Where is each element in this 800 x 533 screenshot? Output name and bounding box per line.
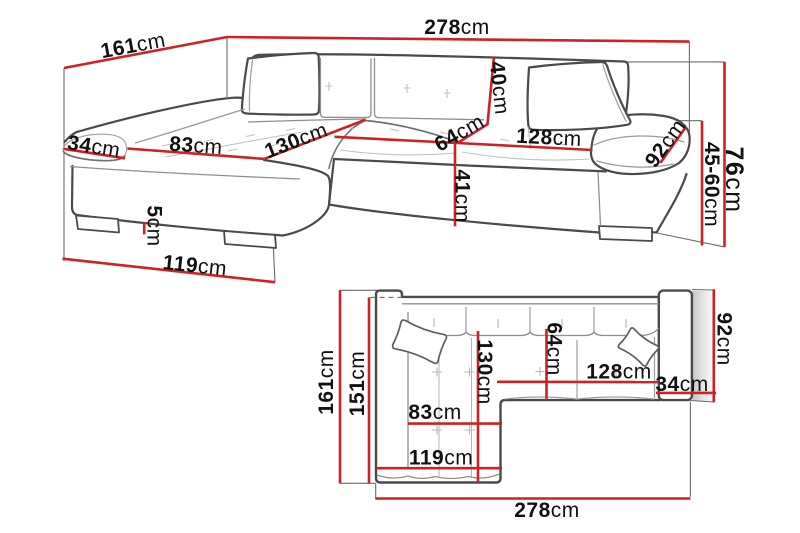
svg-text:128cm: 128cm — [516, 125, 583, 151]
svg-text:41cm: 41cm — [451, 169, 474, 222]
svg-text:34cm: 34cm — [655, 373, 708, 396]
svg-text:130cm: 130cm — [473, 339, 496, 405]
svg-text:83cm: 83cm — [408, 401, 461, 424]
svg-text:278cm: 278cm — [514, 499, 580, 522]
svg-text:161cm: 161cm — [315, 349, 338, 415]
svg-text:5cm: 5cm — [143, 205, 166, 246]
svg-text:45-60cm: 45-60cm — [700, 142, 723, 227]
svg-text:64cm: 64cm — [543, 322, 566, 375]
svg-text:76cm: 76cm — [720, 146, 748, 213]
svg-text:151cm: 151cm — [346, 351, 369, 417]
svg-text:92cm: 92cm — [713, 312, 736, 365]
svg-text:128cm: 128cm — [586, 360, 652, 383]
svg-text:119cm: 119cm — [409, 446, 473, 469]
svg-text:83cm: 83cm — [169, 133, 224, 160]
svg-text:278cm: 278cm — [424, 16, 490, 39]
